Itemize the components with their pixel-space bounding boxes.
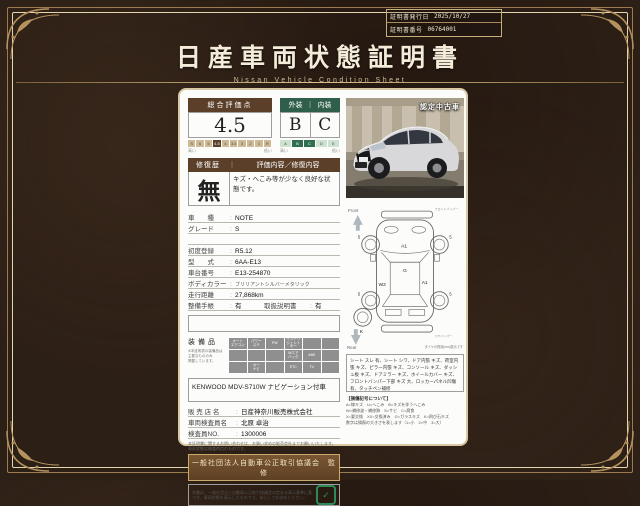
spec-row-first-registration: 初度登録 : R5.12 — [188, 245, 340, 256]
left-column: 総合評価点 外装 ｜ 内装 4.5 B C S 6 5 4.5 4 3.5 3 — [188, 98, 340, 506]
owners-manual-value: 有 — [315, 300, 340, 310]
repair-description: キズ・へこみ等が少なく良好な状態です。 — [229, 172, 339, 205]
equipment-cell — [303, 338, 321, 349]
spec-row-mileage: 走行距離 : 27,868km — [188, 289, 340, 300]
scale-cell: 2 — [247, 140, 255, 147]
spec-row-blank — [188, 234, 340, 245]
repair-history-body: 無 キズ・へこみ等が少なく良好な状態です。 — [188, 172, 340, 206]
tire-tread-value: 5 — [358, 235, 361, 240]
score-low-label: 低い — [264, 148, 272, 153]
equipment-cell: カー ナビ — [248, 362, 266, 373]
grade-high-label: 高い — [280, 148, 288, 153]
grade-scale: A B C D E — [280, 140, 340, 147]
corner-ornament-icon — [573, 413, 637, 477]
scale-cell: S — [188, 140, 196, 147]
spec-row-records: 整備手帳 : 有 取扱説明書 : 有 — [188, 300, 340, 311]
equipment-cell — [229, 362, 247, 373]
repair-history-header: 修復歴 ｜ 評価内容／修復内容 — [188, 158, 340, 172]
equipment-section: 装備品 ※本証明書の装備品は 主要なもののみ 掲載しています。 オート エアコン… — [188, 337, 340, 374]
issue-date-value: 2025/10/27 — [434, 13, 470, 20]
evaluation-values: 4.5 B C — [188, 112, 340, 138]
scale-cell: A — [280, 140, 292, 147]
scale-cell: 1 — [255, 140, 263, 147]
owners-manual-label: 取扱説明書 — [264, 300, 310, 310]
certificate-panel: 総合評価点 外装 ｜ 内装 4.5 B C S 6 5 4.5 4 3.5 3 — [178, 88, 468, 446]
front-bumper-label: フロントバンパー — [435, 206, 459, 211]
score-scale: S 6 5 4.5 4 3.5 3 2 1 R — [188, 140, 272, 147]
corner-ornament-icon — [3, 413, 67, 477]
spec-row-body-color: ボディカラー : ブリリアントシルバーメタリック — [188, 278, 340, 289]
scale-cell: 6 — [196, 140, 204, 147]
scale-cell-selected: 4.5 — [213, 140, 221, 147]
right-column: 認定中古車 Front フロントバンパー — [346, 98, 464, 426]
council-seal-icon: ✓ — [316, 485, 336, 505]
equipment-cell: ETC — [285, 362, 303, 373]
document-header: 日産車両状態証明書 Nissan Vehicle Condition Sheet — [0, 38, 640, 84]
equipment-cell: オート エアコン — [229, 338, 247, 349]
equipment-cell: Wエア バッグ — [285, 350, 303, 361]
vehicle-spec-list: 車 種 : NOTE グレード : S 初度登録 : R5.12 型 式 — [188, 212, 340, 311]
damage-diagram: Front フロントバンパー — [346, 202, 464, 350]
council-statement-text: 本書は、一般社団法人自動車公正取引協議会の定める表示基準に基づき、車両状態を表示… — [192, 490, 313, 501]
equipment-cell: PW — [266, 338, 284, 349]
memo-box — [188, 315, 340, 332]
equipment-cell — [266, 362, 284, 373]
maintenance-book-value: 有 — [235, 300, 264, 310]
grade-separator: ｜ — [307, 100, 314, 110]
dealer-name-row: 販 売 店 名 : 日産神奈川販売株式会社 — [188, 406, 340, 417]
scale-cell-selected: B — [292, 140, 304, 147]
scale-cell: 3.5 — [230, 140, 238, 147]
audio-navigation-box: KENWOOD MDV-S710W ナビゲーション付車 — [188, 378, 340, 402]
tire-tread-value: 5 — [449, 235, 452, 240]
score-high-label: 高い — [188, 148, 196, 153]
equipment-cell — [248, 350, 266, 361]
maintenance-book-label: 整備手帳 — [188, 300, 230, 310]
damage-code-glass: G — [403, 268, 407, 274]
vehicle-photo: 認定中古車 — [346, 98, 464, 198]
front-label: Front — [348, 208, 359, 213]
equipment-cell: パワー ステ — [248, 338, 266, 349]
tire-tread-value: 5 — [358, 292, 361, 297]
grade-header: 外装 ｜ 内装 — [280, 98, 340, 112]
equipment-cell — [322, 350, 340, 361]
spec-row-chassis-number: 車台番号 : E13-254870 — [188, 267, 340, 278]
interior-label: 内装 — [318, 100, 332, 110]
damage-code-left: W2 — [378, 282, 386, 288]
footer-notes: 本証明書に関するお問い合わせは、お買い求めの販売会社までお願いいたします。 車両… — [188, 441, 340, 451]
damage-code-spare: K — [360, 329, 364, 335]
scale-end-labels: 高い 低い 高い 低い — [188, 148, 340, 153]
evaluation-headers: 総合評価点 外装 ｜ 内装 — [188, 98, 340, 112]
header-divider — [16, 82, 624, 83]
damage-legend: 【損傷記号について】 A=線キズ U=へこみ B=キズを伴うへこみ W=補修波・… — [346, 396, 464, 426]
tire-tread-value: 5 — [449, 292, 452, 297]
spec-row-type: 型 式 : 6AA-E13 — [188, 256, 340, 267]
equipment-cell — [322, 362, 340, 373]
exterior-grade-value: B — [281, 113, 310, 137]
scale-cell: 5 — [205, 140, 213, 147]
certificate-info-box: 証明書発行日 2025/10/27 証明書番号 06764001 — [386, 9, 502, 37]
evaluation-scales: S 6 5 4.5 4 3.5 3 2 1 R A B C D E — [188, 140, 340, 147]
damage-code-hood: A1 — [401, 243, 407, 249]
equipment-cell — [322, 338, 340, 349]
equipment-cell — [229, 350, 247, 361]
scale-cell: R — [264, 140, 272, 147]
council-statement-box: 本書は、一般社団法人自動車公正取引協議会の定める表示基準に基づき、車両状態を表示… — [188, 484, 340, 506]
scale-cell-selected: C — [304, 140, 316, 147]
repair-detail-label: 評価内容／修復内容 — [236, 158, 340, 172]
issue-date-label: 証明書発行日 — [390, 12, 429, 21]
grade-low-label: 低い — [332, 148, 340, 153]
certificate-issue-row: 証明書発行日 2025/10/27 — [387, 10, 501, 22]
rear-label: Rear — [347, 345, 357, 350]
damage-description-box: シート スレ 有、シート シワ、ドア内張 キズ、荷室内張 キズ、ピラー内張 キズ… — [346, 354, 464, 392]
damage-diagram-drawing: Front フロントバンパー — [346, 202, 464, 350]
equipment-cell: インテリ ジェント キー — [285, 338, 303, 349]
repair-header-separator: ｜ — [228, 160, 236, 170]
certificate-number-value: 06764001 — [428, 26, 457, 33]
inspector-number-row: 検査員NO. : 1300006 — [188, 428, 340, 439]
equipment-cell: TV — [303, 362, 321, 373]
certificate-number-row: 証明書番号 06764001 — [387, 22, 501, 35]
certified-used-car-badge: 認定中古車 — [420, 102, 460, 112]
footer-note-line: 車両状態は検査時点のものです。 — [188, 446, 340, 451]
repair-history-label: 修復歴 — [188, 158, 228, 172]
dealer-info: 販 売 店 名 : 日産神奈川販売株式会社 車両検査員名 : 北原 卓治 検査員… — [188, 406, 340, 439]
spec-row-grade: グレード : S — [188, 223, 340, 234]
page-title: 日産車両状態証明書 — [0, 38, 640, 74]
exterior-label: 外装 — [289, 100, 303, 110]
legend-line: 数字は損傷の大きさを表します（1=小 2=中 3=大） — [346, 420, 464, 426]
equipment-grid: オート エアコン パワー ステ PW インテリ ジェント キー Wエア バッグ … — [228, 337, 340, 374]
inspector-name-row: 車両検査員名 : 北原 卓治 — [188, 417, 340, 428]
total-score-value: 4.5 — [188, 112, 272, 138]
equipment-note: ※本証明書の装備品は 主要なもののみ 掲載しています。 — [188, 349, 228, 364]
damage-code-right: A1 — [422, 280, 428, 286]
vehicle-photo-image — [346, 98, 464, 198]
council-banner: 一般社団法人自動車公正取引協議会 監修 — [188, 454, 340, 481]
spec-row-model: 車 種 : NOTE — [188, 212, 340, 223]
interior-grade-value: C — [310, 113, 340, 137]
repair-history-value: 無 — [189, 172, 229, 205]
tread-note: タイヤの残溝(mm)表示です — [425, 344, 463, 349]
scale-cell: E — [328, 140, 340, 147]
rear-bumper-label: リヤバンパー — [435, 333, 453, 338]
equipment-cell: ABS — [303, 350, 321, 361]
certificate-number-label: 証明書番号 — [390, 25, 423, 34]
equipment-label: 装備品 — [188, 337, 228, 347]
scale-cell: D — [316, 140, 328, 147]
scale-cell: 3 — [238, 140, 246, 147]
equipment-cell — [266, 350, 284, 361]
scale-cell: 4 — [222, 140, 230, 147]
grade-values: B C — [280, 112, 340, 138]
score-header: 総合評価点 — [188, 98, 272, 112]
